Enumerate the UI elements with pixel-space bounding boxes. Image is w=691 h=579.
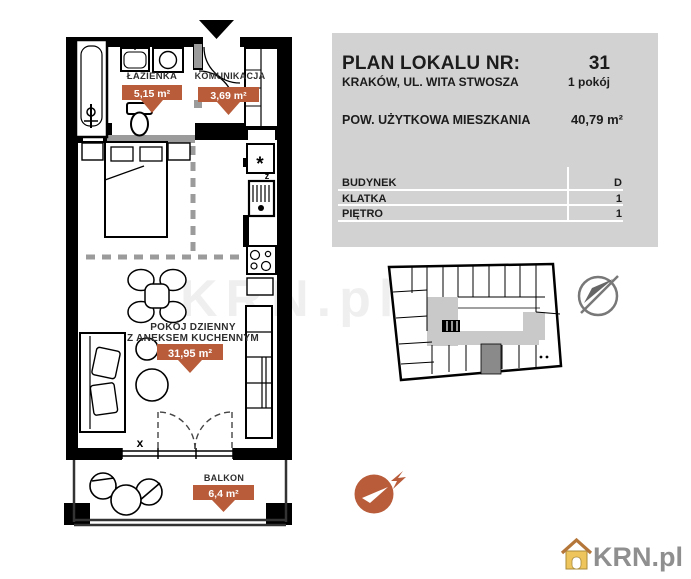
krn-logo: KRN.pl [562,540,683,572]
bathtub [76,40,107,137]
room-label-pokoj-line1: POKÓJ DZIENNY [150,320,236,333]
apartment-plan: x [64,20,292,525]
room-label-lazienka: ŁAZIENKA [127,71,177,82]
entrance-arrow-icon [199,20,234,39]
floor-plan-page: PLAN LOKALU NR: 31 KRAKÓW, UL. WITA STWO… [0,0,691,579]
room-label-balkon: BALKON [204,473,244,483]
balcony-furniture [90,473,162,515]
area-value-pokoj: 31,95 m² [168,348,212,360]
north-arrow-icon [579,276,618,315]
floor-plan-graphic: KRN.pl [0,0,691,579]
sink-z-marker: z [265,171,270,181]
highlighted-unit [481,344,501,374]
window-x-marker: x [137,436,144,450]
virtual-tour-icon [355,471,407,514]
logo-text: KRN.pl [593,542,683,572]
washing-machine [153,48,183,72]
sofa [80,333,125,432]
stairs [442,320,460,332]
wall-niche [248,130,275,140]
bed [82,142,190,237]
plan-dot [546,356,549,359]
stove [247,246,276,274]
area-value-balkon: 6,4 m² [208,488,239,500]
building-overview-plan [389,264,561,380]
kitchen-sink [249,181,274,216]
area-value-lazienka: 5,15 m² [134,88,171,100]
balcony-door-arcs [158,412,232,449]
area-value-komunikacja: 3,69 m² [210,90,247,102]
plan-dot [540,356,543,359]
room-label-komunikacja: KOMUNIKACJA [195,71,266,81]
pouf [136,369,168,401]
freezer-marker: * [256,154,264,175]
bathroom-sink [121,44,149,71]
room-label-pokoj-line2: Z ANEKSEM KUCHENNYM [127,333,259,344]
house-icon [562,540,591,569]
fridge: * [243,144,274,175]
dining-table [128,270,186,323]
